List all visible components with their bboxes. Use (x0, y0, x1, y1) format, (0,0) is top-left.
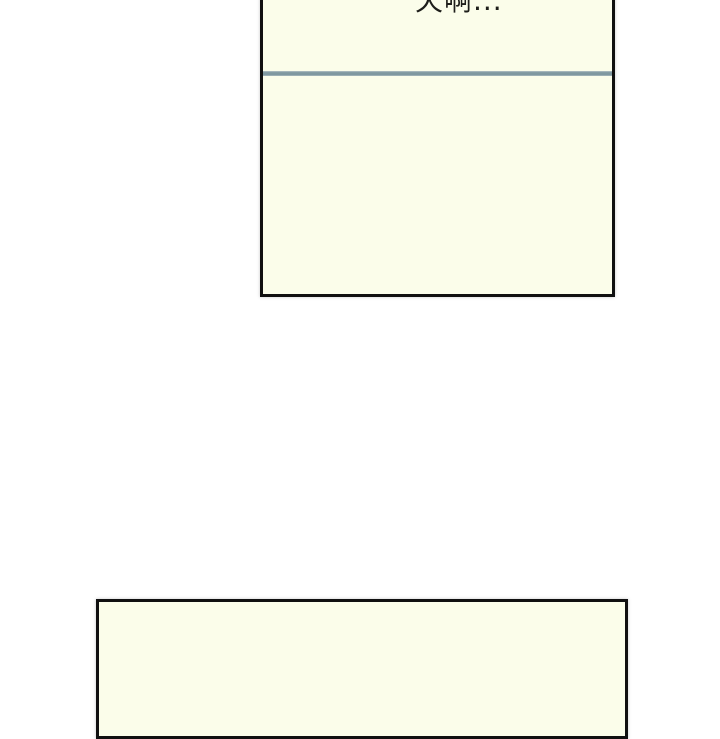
page-background: { "page": { "background": "#ffffff" }, "… (0, 0, 720, 700)
comic-panel-bottom (96, 599, 628, 739)
comic-panel-top: 天啊... (260, 0, 615, 297)
panel-divider-line (263, 71, 612, 76)
dialogue-text: 天啊... (415, 0, 503, 15)
